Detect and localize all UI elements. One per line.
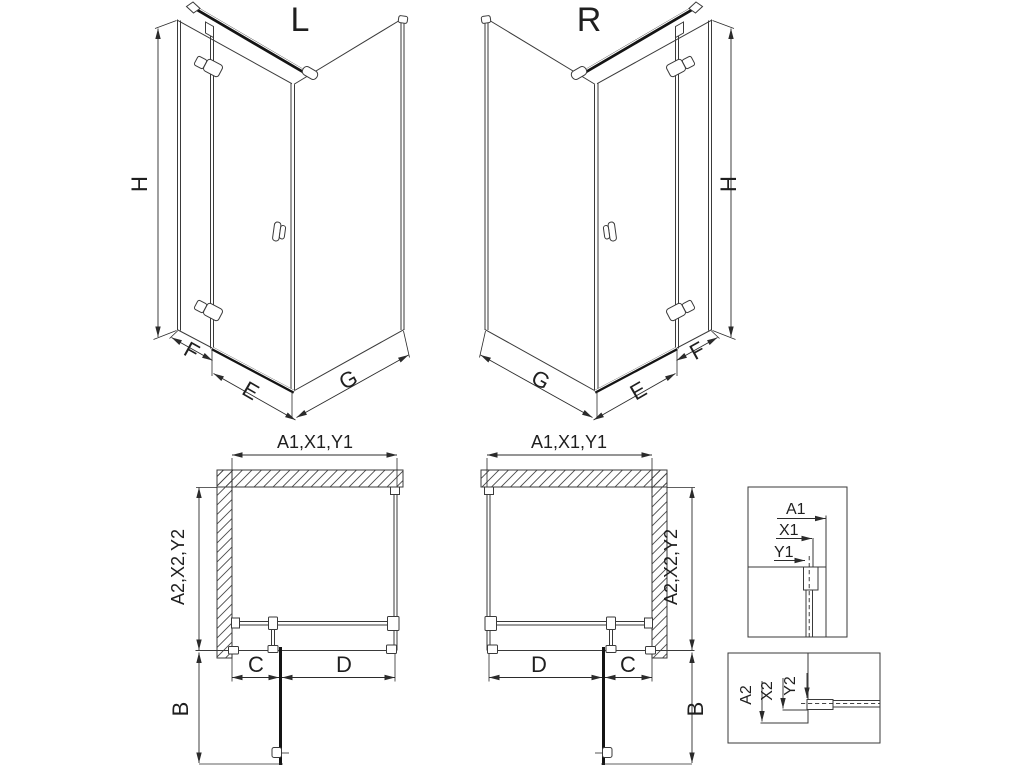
dim-label-fixed-right: F xyxy=(685,336,709,364)
plan-left-bar-connector xyxy=(269,617,278,630)
plan-right-label-side: A2,X2,Y2 xyxy=(661,529,681,605)
plan-left-front-corner-bracket xyxy=(387,645,397,654)
plan-left-bar-wall-bracket xyxy=(232,618,240,628)
detail-label-y1: Y1 xyxy=(774,544,794,561)
detail-label-y2: Y2 xyxy=(782,676,799,696)
plan-left-support-bar xyxy=(239,622,388,626)
plan-right-strut-foot xyxy=(606,646,616,653)
plan-right-label-c: C xyxy=(620,652,636,677)
plan-left-view: A1,X1,Y1 A2,X2,Y2 C D B xyxy=(168,432,403,765)
detail-label-x1: X1 xyxy=(779,522,799,539)
plan-right-top-wall xyxy=(481,470,667,487)
iso-right-view: R H F E G xyxy=(480,1,742,420)
plan-right-front-wall-bracket xyxy=(646,647,656,655)
dim-label-door-right: E xyxy=(626,376,651,405)
plan-left-door-handle xyxy=(272,748,282,758)
plan-right-label-b: B xyxy=(683,702,708,717)
plan-right-bar-connector xyxy=(607,617,616,630)
drawing-sheet: L H F E G R H F E G xyxy=(0,0,1024,768)
detail-depth-view: A2 X2 Y2 xyxy=(728,653,880,743)
iso-left-title: L xyxy=(291,1,310,39)
plan-right-door-handle xyxy=(603,748,613,758)
detail-width-view: A1 X1 Y1 xyxy=(748,487,847,637)
plan-right-view: A1,X1,Y1 A2,X2,Y2 C D B xyxy=(481,432,708,765)
plan-left-strut-foot xyxy=(268,646,278,653)
plan-right-bar-corner-clamp xyxy=(485,617,497,631)
plan-left-front-wall-bracket xyxy=(229,647,239,655)
detail-label-a1: A1 xyxy=(786,501,806,518)
dim-label-fixed-left: F xyxy=(180,336,204,364)
plan-right-front-corner-bracket xyxy=(488,645,498,654)
dim-label-side-left: G xyxy=(335,365,362,395)
plan-left-strut xyxy=(272,630,275,647)
iso-left-view: L H F E G xyxy=(127,1,410,420)
plan-left-side-wall xyxy=(217,470,232,658)
plan-right-label-d: D xyxy=(531,652,547,677)
detail-label-x2: X2 xyxy=(759,681,776,701)
plan-left-panel-cap xyxy=(391,487,400,495)
diagram-canvas: L H F E G R H F E G xyxy=(0,0,1024,768)
plan-left-top-wall xyxy=(217,470,403,487)
plan-right-label-top: A1,X1,Y1 xyxy=(531,432,607,452)
detail-label-a2: A2 xyxy=(738,685,755,705)
plan-left-label-d: D xyxy=(336,652,352,677)
plan-left-label-c: C xyxy=(248,652,264,677)
plan-left-label-side: A2,X2,Y2 xyxy=(168,529,188,605)
detail-depth-profile xyxy=(807,700,833,710)
plan-left-label-b: B xyxy=(168,702,193,717)
dim-label-door-left: E xyxy=(238,376,263,405)
detail-width-profile xyxy=(804,567,819,590)
dim-label-height-left: H xyxy=(127,176,152,192)
dim-label-height-right: H xyxy=(716,176,741,192)
plan-left-bar-corner-clamp xyxy=(388,617,400,631)
plan-right-panel-cap xyxy=(485,487,494,495)
iso-right-title: R xyxy=(577,1,602,39)
plan-left-label-top: A1,X1,Y1 xyxy=(277,432,353,452)
plan-right-strut xyxy=(610,630,613,647)
plan-right-bar-wall-bracket xyxy=(645,618,653,628)
plan-right-support-bar xyxy=(496,622,645,626)
dim-label-side-right: G xyxy=(527,365,554,395)
